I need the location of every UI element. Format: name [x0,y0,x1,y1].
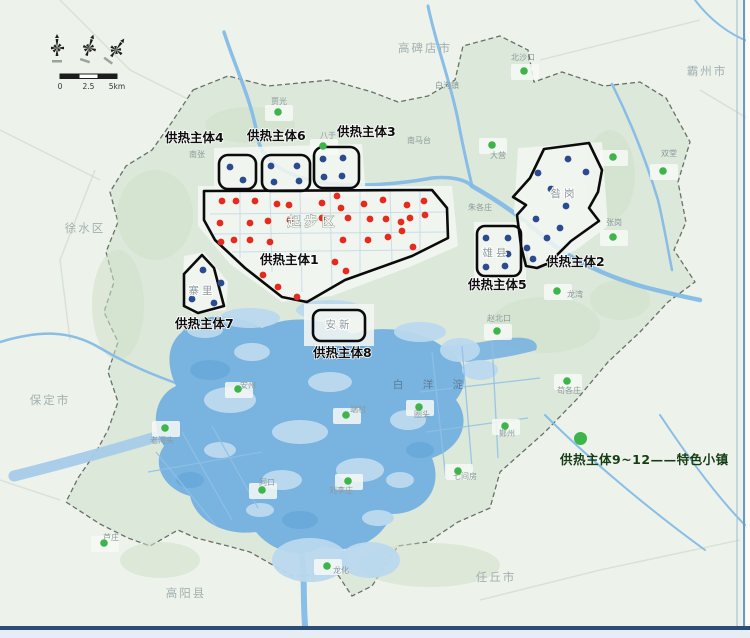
blue-heat-source-dot [339,173,346,180]
scale-segment [98,74,117,79]
green-town-dot [319,142,327,150]
town-labels-label: 南马台 [407,135,431,145]
green-town-dot [609,233,617,241]
red-heat-source-dot [219,198,226,205]
red-heat-source-dot [267,239,274,246]
blue-heat-source-dot [533,216,540,223]
blue-heat-source-dot [583,169,590,176]
blue-heat-source-dot [557,225,564,232]
blue-heat-source-dot [340,155,347,162]
red-heat-source-dot [332,259,339,266]
green-town-dot [344,477,352,485]
red-heat-source-dot [338,205,345,212]
green-town-dot [488,141,496,149]
green-town-dot [520,67,528,75]
red-heat-source-dot [343,268,350,275]
map-blob [234,343,270,361]
map-blob [394,322,446,342]
lake-name: 白 洋 淀 [393,378,471,391]
lake-name-label: 白 洋 淀 [393,378,471,391]
green-town-dot [274,108,282,116]
blue-heat-source-dot [227,164,234,171]
red-heat-source-dot [319,200,326,207]
town-labels-label: 八于 [320,131,336,140]
city-labels-label: 保定市 [30,393,71,407]
town-labels-label: 同口 [259,478,275,487]
green-town-dot [161,424,169,432]
town-labels-label: 双堂 [661,148,677,158]
blue-heat-source-dot [321,174,328,181]
town-labels-label: 大营 [490,150,506,160]
blue-heat-source-dot [296,178,303,185]
city-labels-label: 任丘市 [476,570,517,584]
red-heat-source-dot [252,198,259,205]
blue-heat-source-dot [320,156,327,163]
map-blob [204,442,236,458]
town-labels-label: 南张 [189,149,205,159]
supply-entity-labels-label: 供热主体4 [164,130,224,145]
red-heat-source-dot [274,201,281,208]
supply-entity-labels-label: 供热主体6 [246,128,306,143]
red-heat-source-dot [231,237,238,244]
scale-segment [60,74,79,79]
town-labels-label: 鄚州 [499,428,515,438]
town-labels-label: 安州 [240,380,256,390]
town-labels-label: 龙湾 [567,289,583,299]
town-labels-label: 圈头 [414,409,430,419]
town-labels-label: 贾光 [271,96,287,106]
supply-entity-labels-label: 供热主体2 [545,254,605,269]
town-labels-label: 芦庄 [103,532,119,542]
blue-heat-source-dot [505,235,512,242]
blue-heat-source-dot [565,156,572,163]
town-labels-label: 北沙口 [511,53,535,62]
red-heat-source-dot [345,215,352,222]
city-labels-label: 徐水区 [65,221,106,235]
red-heat-source-dot [334,193,341,200]
map-blob [386,472,414,488]
red-heat-source-dot [233,198,240,205]
supply-entity-labels-label: 供热主体3 [336,124,396,139]
red-heat-source-dot [275,284,282,291]
district-labels-label: 起步区 [286,214,338,230]
red-heat-source-dot [260,272,267,279]
map-blob [362,510,394,526]
map-blob [246,503,274,517]
town-labels-label: 苟各庄 [557,385,581,395]
red-heat-source-dot [247,237,254,244]
red-heat-source-dot [361,201,368,208]
scale-bar-label: 0 [58,82,63,91]
map-blob [272,420,328,444]
blue-heat-source-dot [535,170,542,177]
scale-bar-label: 2.5 [83,82,95,91]
red-heat-source-dot [385,234,392,241]
map-blob [308,372,352,392]
red-heat-source-dot [407,215,414,222]
red-heat-source-dot [404,202,411,209]
town-labels-label: 张岗 [606,218,622,227]
red-heat-source-dot [421,198,428,205]
green-town-dot [609,153,617,161]
green-town-dot [659,167,667,175]
red-heat-source-dot [399,228,406,235]
scale-segment [79,74,98,79]
wind-rose-caption [52,60,62,63]
district-labels-label: 昝岗 [551,187,578,200]
town-labels-label: 刘李庄 [329,485,353,495]
green-town-dot [563,377,571,385]
supply-entity-labels-label: 供热主体1 [259,252,319,267]
red-heat-source-dot [265,218,272,225]
map-blob [440,338,480,362]
red-heat-source-dot [365,237,372,244]
blue-heat-source-dot [483,235,490,242]
red-heat-source-dot [367,216,374,223]
blue-heat-source-dot [524,245,531,252]
blue-heat-source-dot [240,177,247,184]
map-blob [190,360,230,380]
blue-heat-source-dot [530,256,537,263]
town-labels-label: 老河头 [150,435,174,445]
red-heat-source-dot [247,220,254,227]
supply-entity-labels-label: 供热主体5 [467,277,527,292]
green-town-dot [493,327,501,335]
blue-heat-source-dot [271,179,278,186]
district-labels-label: 寨里 [189,284,216,297]
city-labels-label: 高碑店市 [398,41,452,55]
supply-entity-labels-label: 供热主体8 [312,345,372,360]
town-labels-label: 七间房 [453,471,477,481]
town-labels-label: 朱各庄 [468,202,492,212]
map-blob [176,472,204,488]
scale-bar-label: 5km [109,82,125,91]
red-heat-source-dot [286,202,293,209]
green-town-dot [323,562,331,570]
red-heat-source-dot [380,197,387,204]
map-blob [92,250,144,360]
map-blob [282,511,318,529]
map-blob [340,542,400,578]
red-heat-source-dot [383,216,390,223]
district-labels-label: 雄县 [483,246,510,259]
green-town-dot [342,411,350,419]
red-heat-source-dot [410,244,417,251]
right-margin [746,0,750,638]
map-blob [120,542,200,578]
map-blob [117,170,193,260]
blue-heat-source-dot [502,263,509,270]
red-heat-source-dot [340,237,347,244]
red-heat-source-dot [218,239,225,246]
map-blob [406,442,434,458]
bottom-margin [0,630,750,638]
red-heat-source-dot [422,212,429,219]
red-heat-source-dot [294,294,301,301]
city-labels-label: 霸州市 [687,64,728,78]
red-heat-source-dot [217,220,224,227]
blue-heat-source-dot [268,163,275,170]
xiongan-heating-supply-map: 白沟镇北沙口贾光八于南马台南张大营朱各庄双堂张岗龙湾赵北口苟各庄鄚州七间房圈头端… [0,0,750,638]
red-heat-source-dot [398,219,405,226]
blue-heat-source-dot [483,264,490,271]
supply-entity-labels-label: 供热主体7 [174,316,234,331]
blue-heat-source-dot [294,163,301,170]
town-labels-label: 端村 [350,404,366,414]
blue-heat-source-dot [211,300,218,307]
district-labels-label: 安新 [326,318,353,331]
blue-heat-source-dot [544,235,551,242]
blue-heat-source-dot [200,267,207,274]
planning-map-canvas: 白沟镇北沙口贾光八于南马台南张大营朱各庄双堂张岗龙湾赵北口苟各庄鄚州七间房圈头端… [0,0,750,638]
frame-bottom-bar [0,626,750,630]
town-labels-label: 赵北口 [487,313,511,323]
city-labels-label: 高阳县 [166,586,207,600]
blue-heat-source-dot [563,203,570,210]
town-labels-label: 龙化 [333,565,349,575]
green-town-dot [553,287,561,295]
town-labels-label: 白沟镇 [435,80,459,90]
green-town-dot [258,486,266,494]
blue-heat-source-dot [218,280,225,287]
